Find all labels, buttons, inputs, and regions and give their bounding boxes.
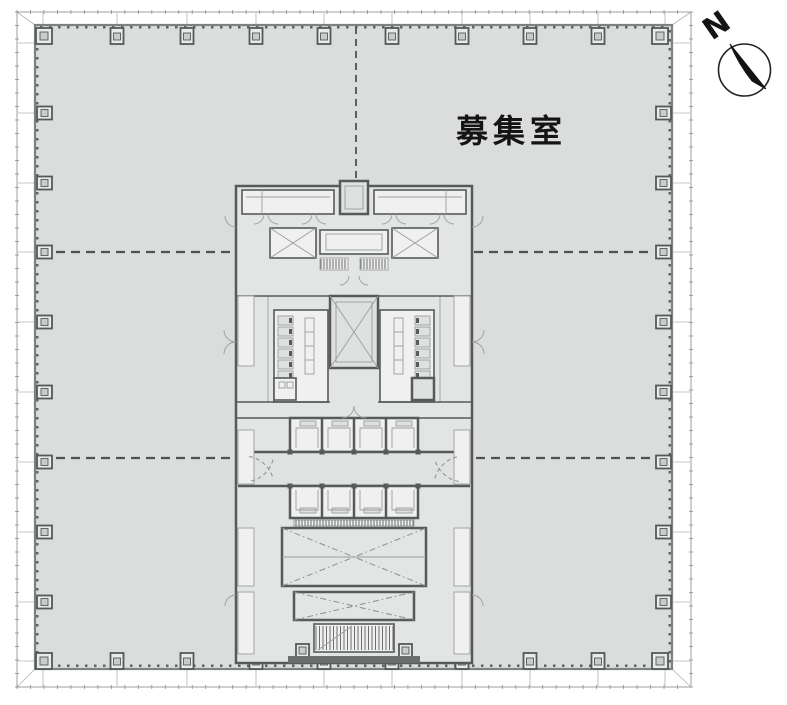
center-room [320, 230, 388, 254]
floor-plan-svg: 募集室 N [0, 0, 787, 705]
elevator-lobby [238, 452, 470, 486]
shaft-large [282, 528, 426, 586]
stair-north-left [270, 228, 316, 258]
north-compass-icon: N [697, 4, 771, 96]
south-strip [294, 520, 414, 526]
stair-north-right [392, 228, 438, 258]
compass-north-letter: N [697, 4, 738, 47]
central-shaft [330, 296, 378, 368]
shaft-small [294, 592, 414, 620]
floor-plan-page: 募集室 N [0, 0, 787, 705]
south-wall-band [288, 656, 420, 663]
core-plan [224, 181, 484, 663]
vacancy-label: 募集室 [455, 112, 567, 150]
